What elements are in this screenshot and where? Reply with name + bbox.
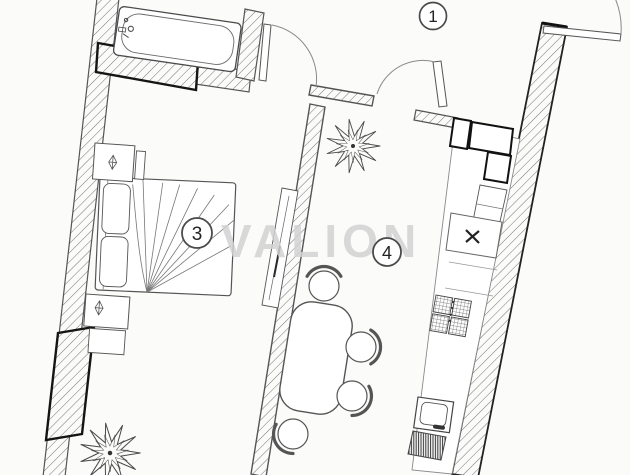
chair [307,267,341,301]
entrance-door-arc [615,0,621,34]
bed [95,177,236,296]
kitchen-door-arc [377,60,435,94]
svg-text:4: 4 [382,243,392,263]
left-wall-highlighted-segment [46,327,94,440]
washing-machine [414,397,454,433]
bedroom-door-arc [272,25,317,87]
chair [337,381,371,416]
kitchen-wall-stub [414,110,458,128]
pillow [99,236,128,287]
room-label-4: 4 [373,238,401,266]
room-label-1: 1 [420,3,447,30]
floor-plan-svg: VALION 1 3 4 [0,0,630,475]
cabinet-block [450,118,471,149]
plant-kitchen [327,119,380,172]
room-label-3: 3 [182,218,212,248]
hallway-t-wall [309,85,374,106]
nightstand-bottom [82,294,130,355]
nightstand-top [92,143,145,182]
cabinet-block [484,152,511,183]
bedroom-door [259,24,317,87]
cabinet-block [469,122,513,155]
svg-text:3: 3 [192,224,203,245]
floor-plan-image: VALION 1 3 4 [0,0,630,475]
stool [88,328,126,354]
stove-burners [430,295,472,337]
chair [274,419,308,454]
svg-text:1: 1 [428,7,437,26]
plant-bedroom [81,423,140,475]
kitchen-door [377,60,447,107]
chair [346,330,381,364]
pillow [102,183,131,234]
kitchen-door-leaf [433,61,447,107]
